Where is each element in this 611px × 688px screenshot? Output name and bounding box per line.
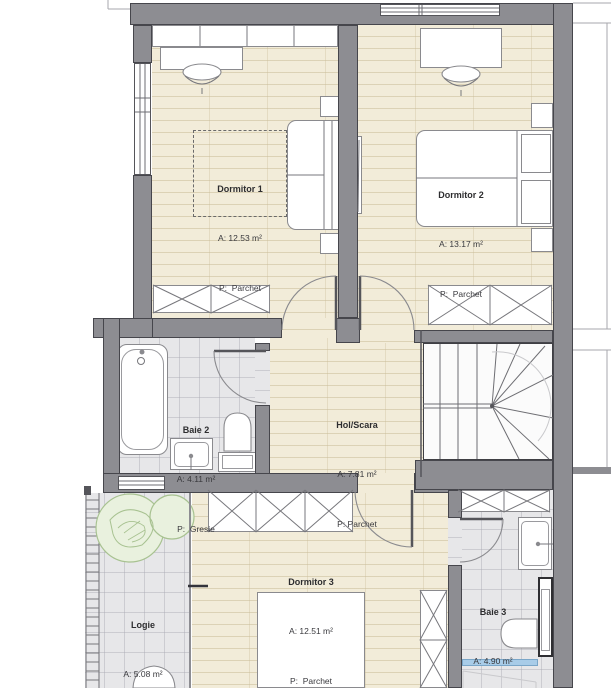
room-name: Baie 2 [177,424,216,437]
bed [287,120,343,230]
floor-plan: Dormitor 1 A: 12.53 m² P: Parchet Dormit… [0,0,611,688]
room-floor-type: P: Parchet [288,675,334,688]
room-name: Baie 3 [473,606,512,619]
wall-stairs-baie3 [415,460,553,490]
wall-left-lower [133,175,152,320]
room-area: A: 13.17 m² [438,238,484,252]
room-name: Logie [123,619,162,632]
wardrobe [420,590,447,688]
room-label-baie-2: Baie 2 A: 4.11 m² P: Gresie [177,388,216,572]
neighbor-slab [573,467,611,474]
room-name: Dormitor 3 [288,576,334,589]
sink-basin [521,521,549,566]
floor-doorway-d1 [282,318,336,338]
floor-doorway-d2 [358,330,414,343]
room-name: Hol/Scara [336,419,378,432]
desk [160,47,243,70]
toilet-cistern-inner [222,455,253,469]
wall-baie3-left-bottom [448,565,462,688]
room-area: A: 12.53 m² [217,232,263,246]
room-label-dormitor-2: Dormitor 2 A: 13.17 m² P: Parchet [438,153,484,337]
duct-shaft-inner [541,589,550,651]
room-label-hol-scara: Hol/Scara A: 7.81 m² P: Parchet [336,383,378,567]
wardrobe [208,490,353,532]
wall-right [553,3,573,688]
wall-center [338,25,358,318]
room-floor-type: P: Parchet [438,288,484,302]
floor-doorway-baie-2 [255,351,270,405]
nightstand [531,103,553,128]
room-area: A: 4.90 m² [473,655,512,669]
room-label-baie-3: Baie 3 A: 4.90 m² P: Gresie [473,570,512,688]
room-area: A: 4.11 m² [177,473,216,487]
room-floor-type: P: Parchet [217,282,263,296]
wall-exterior-step [93,318,153,338]
room-area: A: 7.81 m² [336,468,378,482]
wardrobe [458,490,550,512]
window-left [134,63,151,175]
wall-baie2-right-bottom [255,405,270,475]
wall-baie3-left-top [448,490,462,518]
room-label-dormitor-3: Dormitor 3 A: 12.51 m² P: Parchet [288,540,334,688]
room-name: Dormitor 2 [438,189,484,202]
room-name: Dormitor 1 [217,183,263,196]
room-floor-type: P: Parchet [336,518,378,532]
room-area: A: 12.51 m² [288,625,334,639]
wall-baie2-left [103,318,120,493]
room-floor-type: P: Gresie [177,523,216,537]
nightstand [531,228,553,252]
window-logie [118,476,165,490]
room-label-dormitor-1: Dormitor 1 A: 12.53 m² P: Parchet [217,147,263,331]
bathtub-inner [121,349,164,450]
desk [420,28,502,68]
window-top [380,4,500,16]
pillow [521,180,551,224]
wall-left-upper [133,25,152,63]
staircase [423,343,553,460]
floor-doorway-baie-3 [448,518,462,565]
wall-baie2-right-top [255,343,270,351]
room-label-logie: Logie A: 5.08 m² P: Gresie [123,583,162,688]
pillow [521,134,551,173]
shelf-row [152,25,338,47]
wall-center-foot [336,318,360,343]
room-area: A: 5.08 m² [123,668,162,682]
